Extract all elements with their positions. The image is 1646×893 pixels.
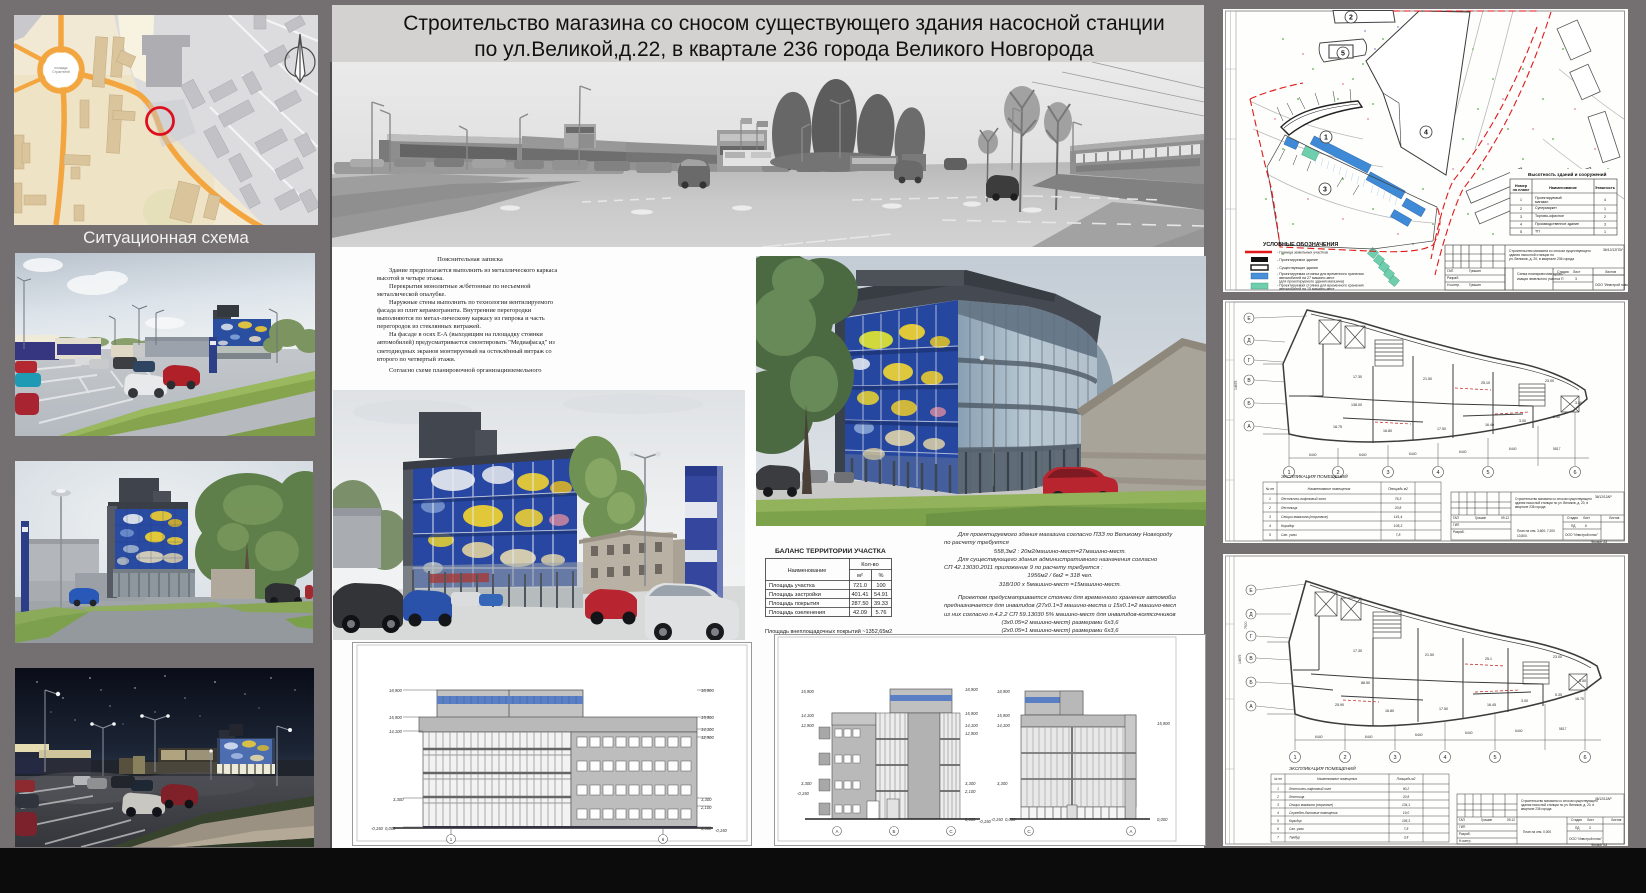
- svg-text:721.0: 721.0: [853, 583, 867, 589]
- svg-text:7,8: 7,8: [1396, 533, 1401, 537]
- svg-text:14,100: 14,100: [801, 713, 814, 718]
- svg-text:1: 1: [1520, 198, 1522, 202]
- svg-text:3: 3: [1589, 826, 1591, 830]
- svg-text:Разраб.: Разраб.: [1453, 530, 1465, 534]
- svg-text:Формат А3: Формат А3: [1591, 843, 1607, 846]
- svg-text:2: 2: [1604, 215, 1606, 219]
- svg-text:3: 3: [1277, 803, 1279, 807]
- svg-text:4: 4: [1436, 470, 1439, 476]
- svg-text:Разраб.: Разраб.: [1459, 832, 1471, 836]
- svg-text:2,100: 2,100: [964, 789, 976, 794]
- svg-text:Высотность зданий и сооружений: Высотность зданий и сооружений: [1528, 171, 1607, 177]
- svg-text:1: 1: [1269, 497, 1271, 501]
- svg-text:Супермаркет: Супермаркет: [1535, 206, 1557, 210]
- svg-text:5: 5: [1493, 755, 1496, 761]
- svg-text:ТП: ТП: [1535, 230, 1540, 234]
- svg-text:Площадь покрытия: Площадь покрытия: [769, 601, 819, 607]
- svg-text:3,300: 3,300: [393, 797, 404, 802]
- svg-text:ООО "Инвстрой плюс": ООО "Инвстрой плюс": [1595, 283, 1628, 287]
- svg-text:4: 4: [1269, 524, 1271, 528]
- svg-text:Площадь застройки: Площадь застройки: [769, 591, 821, 598]
- svg-text:6440: 6440: [1359, 453, 1367, 457]
- svg-text:Секции магазина (торговые): Секции магазина (торговые): [1281, 515, 1328, 519]
- svg-text:141,4: 141,4: [1394, 515, 1403, 519]
- svg-text:14,100: 14,100: [965, 723, 978, 728]
- svg-text:Стадия: Стадия: [1557, 270, 1569, 274]
- svg-text:5: 5: [1341, 51, 1345, 58]
- svg-text:3.00: 3.00: [1519, 419, 1526, 423]
- svg-text:Гришин: Гришин: [1481, 818, 1492, 822]
- svg-text:5: 5: [1269, 533, 1271, 537]
- svg-text:Строителей: Строителей: [52, 70, 70, 74]
- svg-text:Производственное здание: Производственное здание: [1535, 222, 1579, 226]
- svg-text:2: 2: [1520, 207, 1522, 211]
- svg-text:6440: 6440: [1465, 731, 1473, 735]
- svg-text:42.09: 42.09: [853, 610, 867, 616]
- svg-text:76,3: 76,3: [1395, 497, 1402, 501]
- svg-text:18,900: 18,900: [701, 688, 714, 693]
- svg-text:6440: 6440: [1315, 735, 1323, 739]
- svg-text:0,000: 0,000: [385, 826, 396, 831]
- svg-text:6440: 6440: [1309, 453, 1317, 457]
- svg-text:Служебно-бытовые помещения: Служебно-бытовые помещения: [1289, 811, 1338, 815]
- svg-text:ЭКСПЛИКАЦИЯ ПОМЕЩЕНИЙ: ЭКСПЛИКАЦИЯ ПОМЕЩЕНИЙ: [1281, 472, 1348, 479]
- svg-text:А: А: [1129, 829, 1132, 834]
- svg-text:7: 7: [1277, 836, 1279, 840]
- svg-text:Формат А3: Формат А3: [1591, 540, 1607, 543]
- svg-text:-0,150: -0,150: [797, 791, 810, 796]
- svg-text:-0,150: -0,150: [991, 817, 1004, 822]
- svg-text:4: 4: [1520, 223, 1522, 227]
- svg-text:Разраб.: Разраб.: [1447, 276, 1459, 280]
- svg-text:18,900: 18,900: [997, 689, 1010, 694]
- svg-text:5: 5: [1277, 819, 1279, 823]
- svg-text:2: 2: [1343, 755, 1346, 761]
- svg-text:39.33: 39.33: [874, 601, 888, 607]
- svg-text:А: А: [835, 829, 838, 834]
- svg-text:Коридор: Коридор: [1281, 524, 1294, 528]
- svg-text:-0,150: -0,150: [715, 828, 728, 833]
- svg-text:09.12: 09.12: [1507, 818, 1515, 822]
- svg-text:5: 5: [1486, 470, 1489, 476]
- svg-text:изация земельного участка: изация земельного участка: [1517, 277, 1560, 281]
- svg-text:Наименование: Наименование: [1549, 186, 1577, 190]
- svg-text:Наименование: Наименование: [788, 568, 827, 574]
- svg-text:ГИП: ГИП: [1453, 523, 1460, 527]
- svg-text:6440: 6440: [1409, 452, 1417, 456]
- svg-text:3: 3: [1393, 755, 1396, 761]
- svg-text:1: 1: [1324, 135, 1328, 142]
- svg-text:ГАП: ГАП: [1453, 516, 1460, 520]
- svg-text:15,900: 15,900: [389, 715, 402, 720]
- svg-text:Лист: Лист: [1583, 516, 1590, 520]
- svg-text:16.80: 16.80: [1383, 429, 1392, 433]
- svg-text:Кол-во: Кол-во: [861, 562, 878, 568]
- svg-text:ГАП: ГАП: [1447, 269, 1454, 273]
- svg-text:25.90: 25.90: [1335, 703, 1344, 707]
- svg-text:- Граница земельных участков: - Граница земельных участков: [1277, 251, 1328, 255]
- svg-text:Н.контр.: Н.контр.: [1459, 839, 1471, 843]
- svg-text:Гришин: Гришин: [1475, 516, 1486, 520]
- svg-text:0,000: 0,000: [965, 817, 976, 822]
- svg-text:105,3: 105,3: [1402, 819, 1410, 823]
- svg-text:14,100: 14,100: [389, 729, 402, 734]
- svg-text:12,900: 12,900: [701, 735, 714, 740]
- svg-text:3,300: 3,300: [997, 781, 1008, 786]
- svg-text:3,300: 3,300: [801, 781, 812, 786]
- svg-text:№ пп: № пп: [1266, 487, 1274, 491]
- svg-text:17.30: 17.30: [1353, 375, 1362, 379]
- svg-text:6440: 6440: [1509, 447, 1517, 451]
- svg-text:15,900: 15,900: [1157, 721, 1170, 726]
- svg-text:7,8: 7,8: [1404, 827, 1409, 831]
- svg-text:Сан. узлы: Сан. узлы: [1289, 827, 1304, 831]
- svg-text:36/12/12ПЗУ: 36/12/12ПЗУ: [1603, 248, 1624, 252]
- svg-text:м²: м²: [857, 573, 863, 579]
- svg-text:Листов: Листов: [1611, 818, 1622, 822]
- svg-text:6440: 6440: [1415, 733, 1423, 737]
- svg-text:21.50: 21.50: [1423, 377, 1432, 381]
- svg-text:УСЛОВНЫЕ ОБОЗНАЧЕНИЯ: УСЛОВНЫЕ ОБОЗНАЧЕНИЯ: [1263, 242, 1338, 248]
- svg-text:Секции магазина (торговые): Секции магазина (торговые): [1289, 803, 1333, 807]
- svg-text:Лестница: Лестница: [1280, 506, 1297, 510]
- svg-text:Лестница: Лестница: [1288, 795, 1305, 799]
- svg-text:1: 1: [1293, 755, 1296, 761]
- svg-text:5.76: 5.76: [876, 610, 887, 616]
- svg-text:Этажность: Этажность: [1595, 186, 1616, 190]
- svg-text:18.75: 18.75: [1333, 425, 1342, 429]
- svg-text:5817: 5817: [1559, 727, 1567, 731]
- svg-text:18,900: 18,900: [389, 688, 402, 693]
- svg-text:Гришин: Гришин: [1469, 269, 1481, 273]
- svg-text:88.50: 88.50: [1361, 681, 1370, 685]
- svg-text:20,8: 20,8: [1402, 795, 1409, 799]
- svg-text:14,100: 14,100: [997, 723, 1010, 728]
- svg-text:17.30: 17.30: [1353, 649, 1362, 653]
- svg-text:6: 6: [1583, 755, 1586, 761]
- svg-text:14,100: 14,100: [701, 727, 714, 732]
- svg-text:16.70: 16.70: [1575, 697, 1584, 701]
- svg-text:3,8: 3,8: [1404, 836, 1409, 840]
- svg-text:5.30: 5.30: [1553, 415, 1560, 419]
- svg-text:25.10: 25.10: [1481, 381, 1490, 385]
- svg-text:%: %: [879, 573, 884, 579]
- svg-text:1: 1: [1604, 207, 1606, 211]
- svg-text:№ пп: № пп: [1274, 777, 1282, 781]
- svg-text:105,3: 105,3: [1394, 524, 1403, 528]
- svg-text:Листов: Листов: [1605, 270, 1616, 274]
- svg-text:3: 3: [1575, 277, 1577, 281]
- svg-text:ООО "Инвстрой плюс": ООО "Инвстрой плюс": [1565, 533, 1598, 537]
- svg-text:0,000: 0,000: [1005, 817, 1016, 822]
- svg-text:5.35: 5.35: [1555, 693, 1562, 697]
- svg-text:магазин: магазин: [1535, 200, 1548, 204]
- svg-text:на плане: на плане: [1513, 188, 1530, 192]
- svg-text:1: 1: [1277, 787, 1279, 791]
- svg-text:5817: 5817: [1553, 447, 1561, 451]
- svg-text:18,900: 18,900: [965, 687, 978, 692]
- svg-text:Г: Г: [1248, 358, 1251, 364]
- svg-text:План на отм. 3,600; 7,200: План на отм. 3,600; 7,200: [1517, 529, 1555, 533]
- svg-text:401.41: 401.41: [851, 592, 868, 598]
- svg-text:Лист: Лист: [1573, 270, 1581, 274]
- svg-text:Площадь м2: Площадь м2: [1397, 777, 1416, 781]
- svg-text:15,900: 15,900: [701, 715, 714, 720]
- svg-text:17.50: 17.50: [1439, 707, 1448, 711]
- svg-text:Г: Г: [1250, 634, 1253, 640]
- svg-text:25.1: 25.1: [1485, 657, 1492, 661]
- svg-text:Стадия: Стадия: [1571, 818, 1582, 822]
- svg-text:15,900: 15,900: [965, 711, 978, 716]
- svg-text:3: 3: [1520, 215, 1522, 219]
- svg-text:Площадь озеленения: Площадь озеленения: [769, 610, 825, 616]
- svg-text:ООО "Инвстрой плюс": ООО "Инвстрой плюс": [1569, 837, 1602, 841]
- svg-text:3: 3: [1269, 515, 1271, 519]
- svg-text:23.00: 23.00: [1545, 379, 1554, 383]
- svg-text:5: 5: [1520, 230, 1522, 234]
- svg-text:ул. Великов, д. 20, в квартал: ул. Великов, д. 20, в квартале 236 город…: [1509, 257, 1574, 261]
- svg-text:54.91: 54.91: [874, 592, 888, 598]
- svg-text:2: 2: [1349, 15, 1353, 22]
- svg-text:Площадь м2: Площадь м2: [1388, 487, 1408, 491]
- svg-text:ГИП: ГИП: [1459, 825, 1466, 829]
- svg-text:Лист: Лист: [1587, 818, 1594, 822]
- svg-text:7500: 7500: [1244, 621, 1248, 629]
- svg-text:14675: 14675: [1238, 654, 1242, 664]
- svg-text:100: 100: [876, 583, 885, 589]
- svg-text:6440: 6440: [1459, 450, 1467, 454]
- svg-text:6440: 6440: [1515, 729, 1523, 733]
- svg-text:3,300: 3,300: [965, 781, 976, 786]
- svg-text:Наименование помещения: Наименование помещения: [1308, 487, 1351, 491]
- svg-text:ЭКСПЛИКАЦИЯ ПОМЕЩЕНИЙ: ЭКСПЛИКАЦИЯ ПОМЕЩЕНИЙ: [1289, 764, 1356, 771]
- svg-text:20,8: 20,8: [1394, 506, 1402, 510]
- svg-text:16.45: 16.45: [1487, 703, 1496, 707]
- svg-text:134,1: 134,1: [1402, 803, 1410, 807]
- svg-text:4: 4: [1604, 198, 1606, 202]
- svg-text:6: 6: [1277, 827, 1279, 831]
- svg-text:17.50: 17.50: [1437, 427, 1446, 431]
- svg-text:автомобилей на 15 машино-мест: автомобилей на 15 машино-мест: [1279, 287, 1335, 291]
- svg-text:3.50: 3.50: [1579, 679, 1586, 683]
- svg-text:36/12/12АР: 36/12/12АР: [1595, 495, 1612, 499]
- svg-text:Лестнично-лифтовый холл: Лестнично-лифтовый холл: [1280, 497, 1326, 501]
- svg-text:4: 4: [1424, 130, 1428, 137]
- svg-text:Наименование помещения: Наименование помещения: [1317, 777, 1357, 781]
- svg-text:6: 6: [1585, 524, 1587, 528]
- svg-text:16.40: 16.40: [1485, 423, 1494, 427]
- svg-text:12,900: 12,900: [801, 723, 814, 728]
- svg-text:287.50: 287.50: [851, 601, 868, 607]
- svg-text:4: 4: [1443, 755, 1446, 761]
- svg-text:6440: 6440: [1365, 735, 1373, 739]
- svg-text:квартале 236 города: квартале 236 города: [1521, 807, 1552, 811]
- svg-text:Сан. узлы: Сан. узлы: [1281, 533, 1297, 537]
- svg-text:Площадь участка: Площадь участка: [769, 583, 816, 589]
- svg-text:Листов: Листов: [1609, 516, 1620, 520]
- svg-text:0,000: 0,000: [1157, 817, 1168, 822]
- svg-text:4: 4: [1277, 811, 1279, 815]
- svg-text:2: 2: [1268, 506, 1271, 510]
- svg-text:Торгово-офисное: Торгово-офисное: [1535, 214, 1564, 218]
- svg-text:Коридор: Коридор: [1289, 819, 1302, 823]
- svg-text:14675: 14675: [1234, 380, 1238, 390]
- svg-text:6: 6: [1573, 470, 1576, 476]
- svg-text:- Существующие здания: - Существующие здания: [1277, 266, 1318, 270]
- svg-text:Стадия: Стадия: [1567, 516, 1578, 520]
- svg-text:3.50: 3.50: [1575, 401, 1582, 405]
- svg-text:138.00: 138.00: [1351, 403, 1362, 407]
- svg-text:23.00: 23.00: [1553, 655, 1562, 659]
- svg-text:Гришин: Гришин: [1469, 283, 1481, 287]
- svg-text:2: 2: [1276, 795, 1279, 799]
- svg-text:ГАП: ГАП: [1459, 818, 1466, 822]
- svg-text:Н.контр.: Н.контр.: [1447, 283, 1460, 287]
- svg-text:3: 3: [1386, 470, 1389, 476]
- svg-text:-0,150: -0,150: [371, 826, 384, 831]
- svg-text:квартале 236 города: квартале 236 города: [1515, 505, 1546, 509]
- svg-text:12,900: 12,900: [965, 731, 978, 736]
- svg-text:19,0: 19,0: [1403, 811, 1409, 815]
- svg-text:09.12: 09.12: [1501, 516, 1509, 520]
- svg-text:Тамбур: Тамбур: [1289, 836, 1300, 840]
- svg-text:3: 3: [1604, 223, 1606, 227]
- svg-text:21.50: 21.50: [1425, 653, 1434, 657]
- svg-text:10,800.: 10,800.: [1517, 534, 1528, 538]
- svg-text:15,900: 15,900: [801, 689, 814, 694]
- svg-text:15,900: 15,900: [997, 713, 1010, 718]
- svg-text:16.80: 16.80: [1385, 709, 1394, 713]
- svg-text:- Проектируемое здание: - Проектируемое здание: [1277, 258, 1318, 262]
- svg-text:1: 1: [1604, 230, 1606, 234]
- svg-text:Лестнично-лифтовый холл: Лестнично-лифтовый холл: [1288, 787, 1331, 791]
- svg-text:90,2: 90,2: [1403, 787, 1409, 791]
- svg-text:3: 3: [1323, 187, 1327, 194]
- svg-text:План на отм. 0,000: План на отм. 0,000: [1523, 830, 1551, 834]
- svg-text:Б: Б: [893, 829, 896, 834]
- svg-text:3.00: 3.00: [1521, 699, 1528, 703]
- svg-text:-0,150: -0,150: [979, 819, 992, 824]
